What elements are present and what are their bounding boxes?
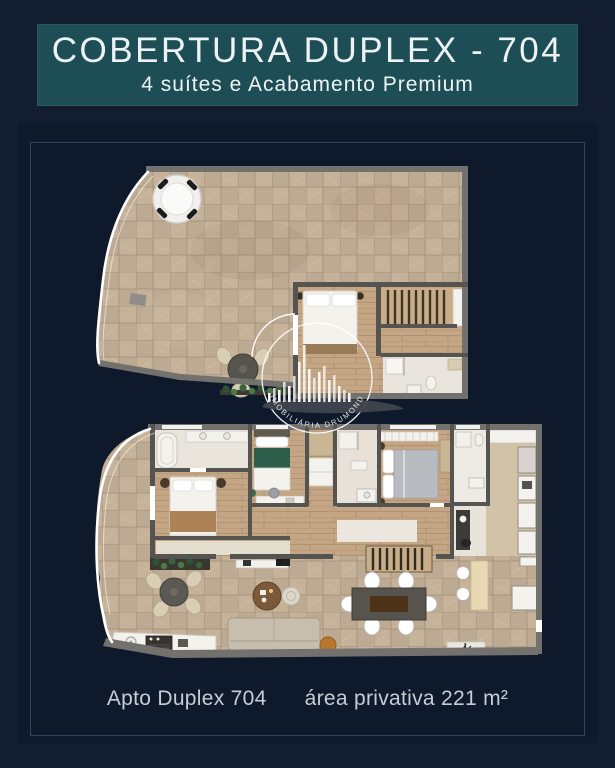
lower-floor-plan bbox=[96, 424, 542, 658]
caption-unit: Apto Duplex 704 bbox=[107, 687, 267, 711]
caption-bar: Apto Duplex 704 área privativa 221 m² bbox=[0, 687, 615, 711]
suite-terrace-strip bbox=[156, 541, 290, 555]
lower-staircase bbox=[366, 546, 432, 572]
jacuzzi bbox=[153, 175, 201, 223]
suite2-bed bbox=[160, 477, 226, 539]
caption-area: área privativa 221 m² bbox=[305, 687, 509, 711]
upper-floor-plan bbox=[97, 166, 468, 399]
lavabo-fixtures bbox=[456, 510, 471, 550]
flyer-page: COBERTURA DUPLEX - 704 4 suítes e Acabam… bbox=[0, 0, 615, 768]
upper-suite-bed bbox=[296, 291, 364, 354]
hall-runner-rug bbox=[337, 520, 417, 542]
hall-wardrobe bbox=[309, 432, 333, 486]
floor-plan-graphic: IMOBILIÁRIA DRUMOND bbox=[0, 0, 615, 768]
